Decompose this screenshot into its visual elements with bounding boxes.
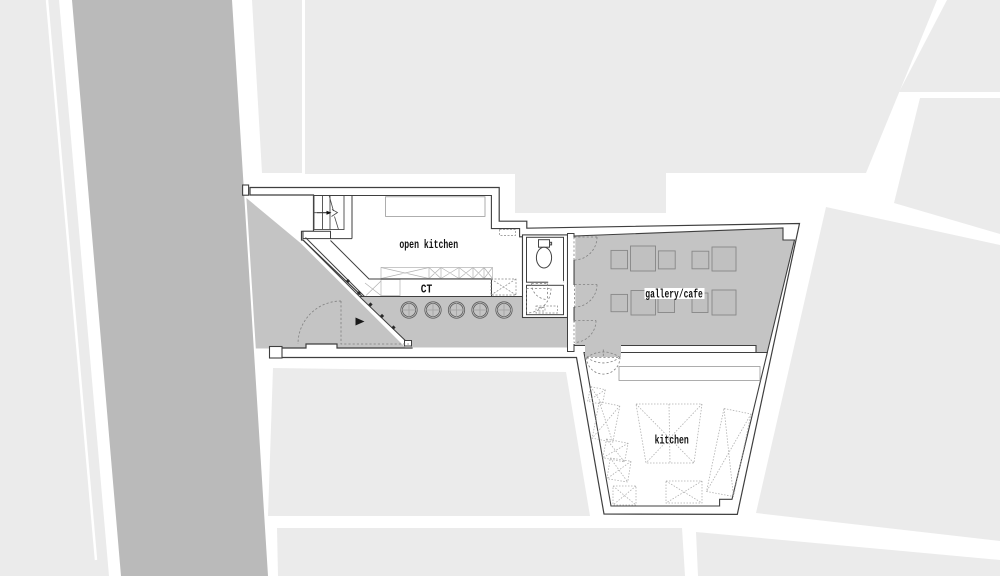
svg-text:CT: CT	[421, 283, 433, 297]
svg-text:open kitchen: open kitchen	[399, 238, 458, 252]
svg-text:gallery/cafe: gallery/cafe	[645, 287, 703, 301]
svg-text:kitchen: kitchen	[655, 434, 689, 448]
